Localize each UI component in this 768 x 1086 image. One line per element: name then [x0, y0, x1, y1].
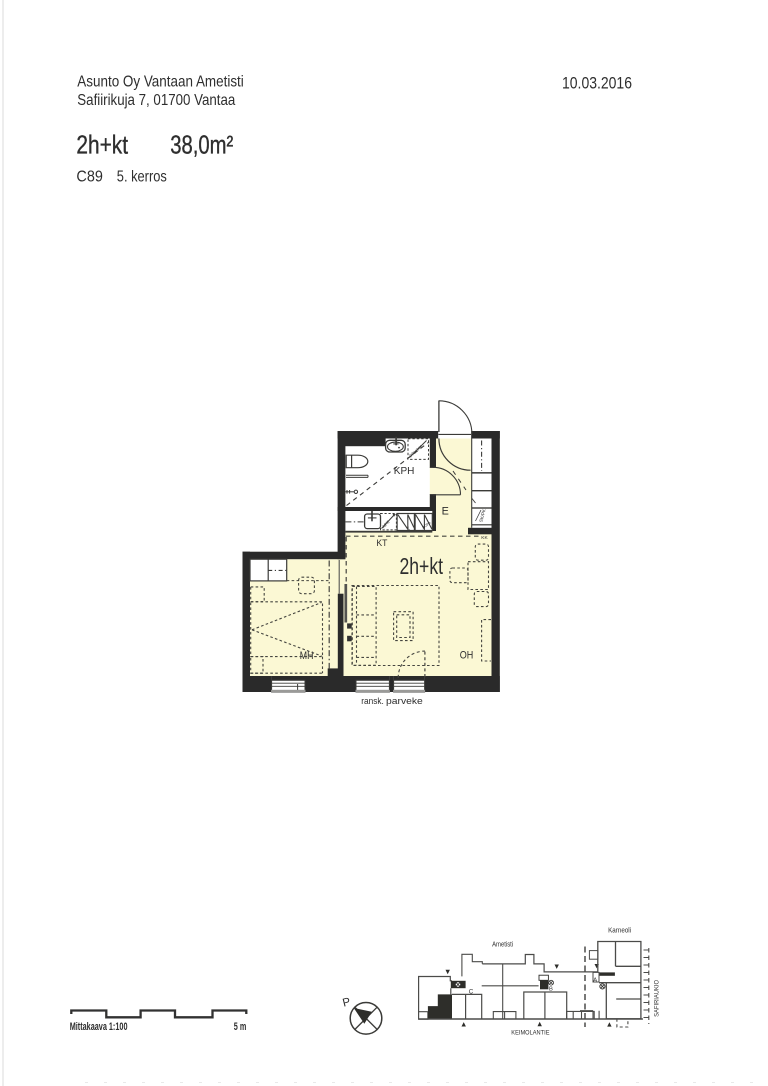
svg-text:2h+kt: 2h+kt — [400, 553, 444, 579]
svg-text:Karneoli: Karneoli — [608, 925, 631, 934]
svg-text:C: C — [469, 988, 474, 995]
svg-text:2h+kt: 2h+kt — [76, 132, 128, 160]
svg-text:10.03.2016: 10.03.2016 — [562, 74, 632, 93]
svg-text:38,0m²: 38,0m² — [170, 132, 233, 160]
svg-text:A: A — [593, 978, 597, 984]
svg-text:C89: C89 — [76, 168, 103, 185]
svg-text:Asunto Oy Vantaan Ametisti: Asunto Oy Vantaan Ametisti — [77, 74, 244, 91]
svg-text:KK: KK — [481, 535, 488, 541]
svg-text:E: E — [442, 506, 449, 518]
svg-text:P: P — [341, 996, 352, 1010]
svg-text:5. kerros: 5. kerros — [117, 168, 167, 185]
svg-text:MH: MH — [300, 650, 314, 662]
svg-text:Ametisti: Ametisti — [492, 939, 513, 948]
svg-text:ransk.: ransk. — [361, 695, 384, 706]
svg-text:5 m: 5 m — [234, 1021, 247, 1033]
svg-text:KT: KT — [376, 537, 387, 548]
svg-text:L: L — [408, 525, 411, 530]
svg-text:OH: OH — [460, 650, 474, 662]
svg-text:KEIMOLANTIE: KEIMOLANTIE — [511, 1029, 550, 1036]
svg-text:Mittakaava 1:100: Mittakaava 1:100 — [70, 1021, 128, 1033]
svg-text:SAFIRIAUKIO: SAFIRIAUKIO — [654, 980, 661, 1017]
svg-text:Safiirikuja 7, 01700 Vantaa: Safiirikuja 7, 01700 Vantaa — [77, 92, 235, 109]
svg-text:parveke: parveke — [386, 695, 423, 706]
svg-text:KPH: KPH — [394, 466, 415, 477]
